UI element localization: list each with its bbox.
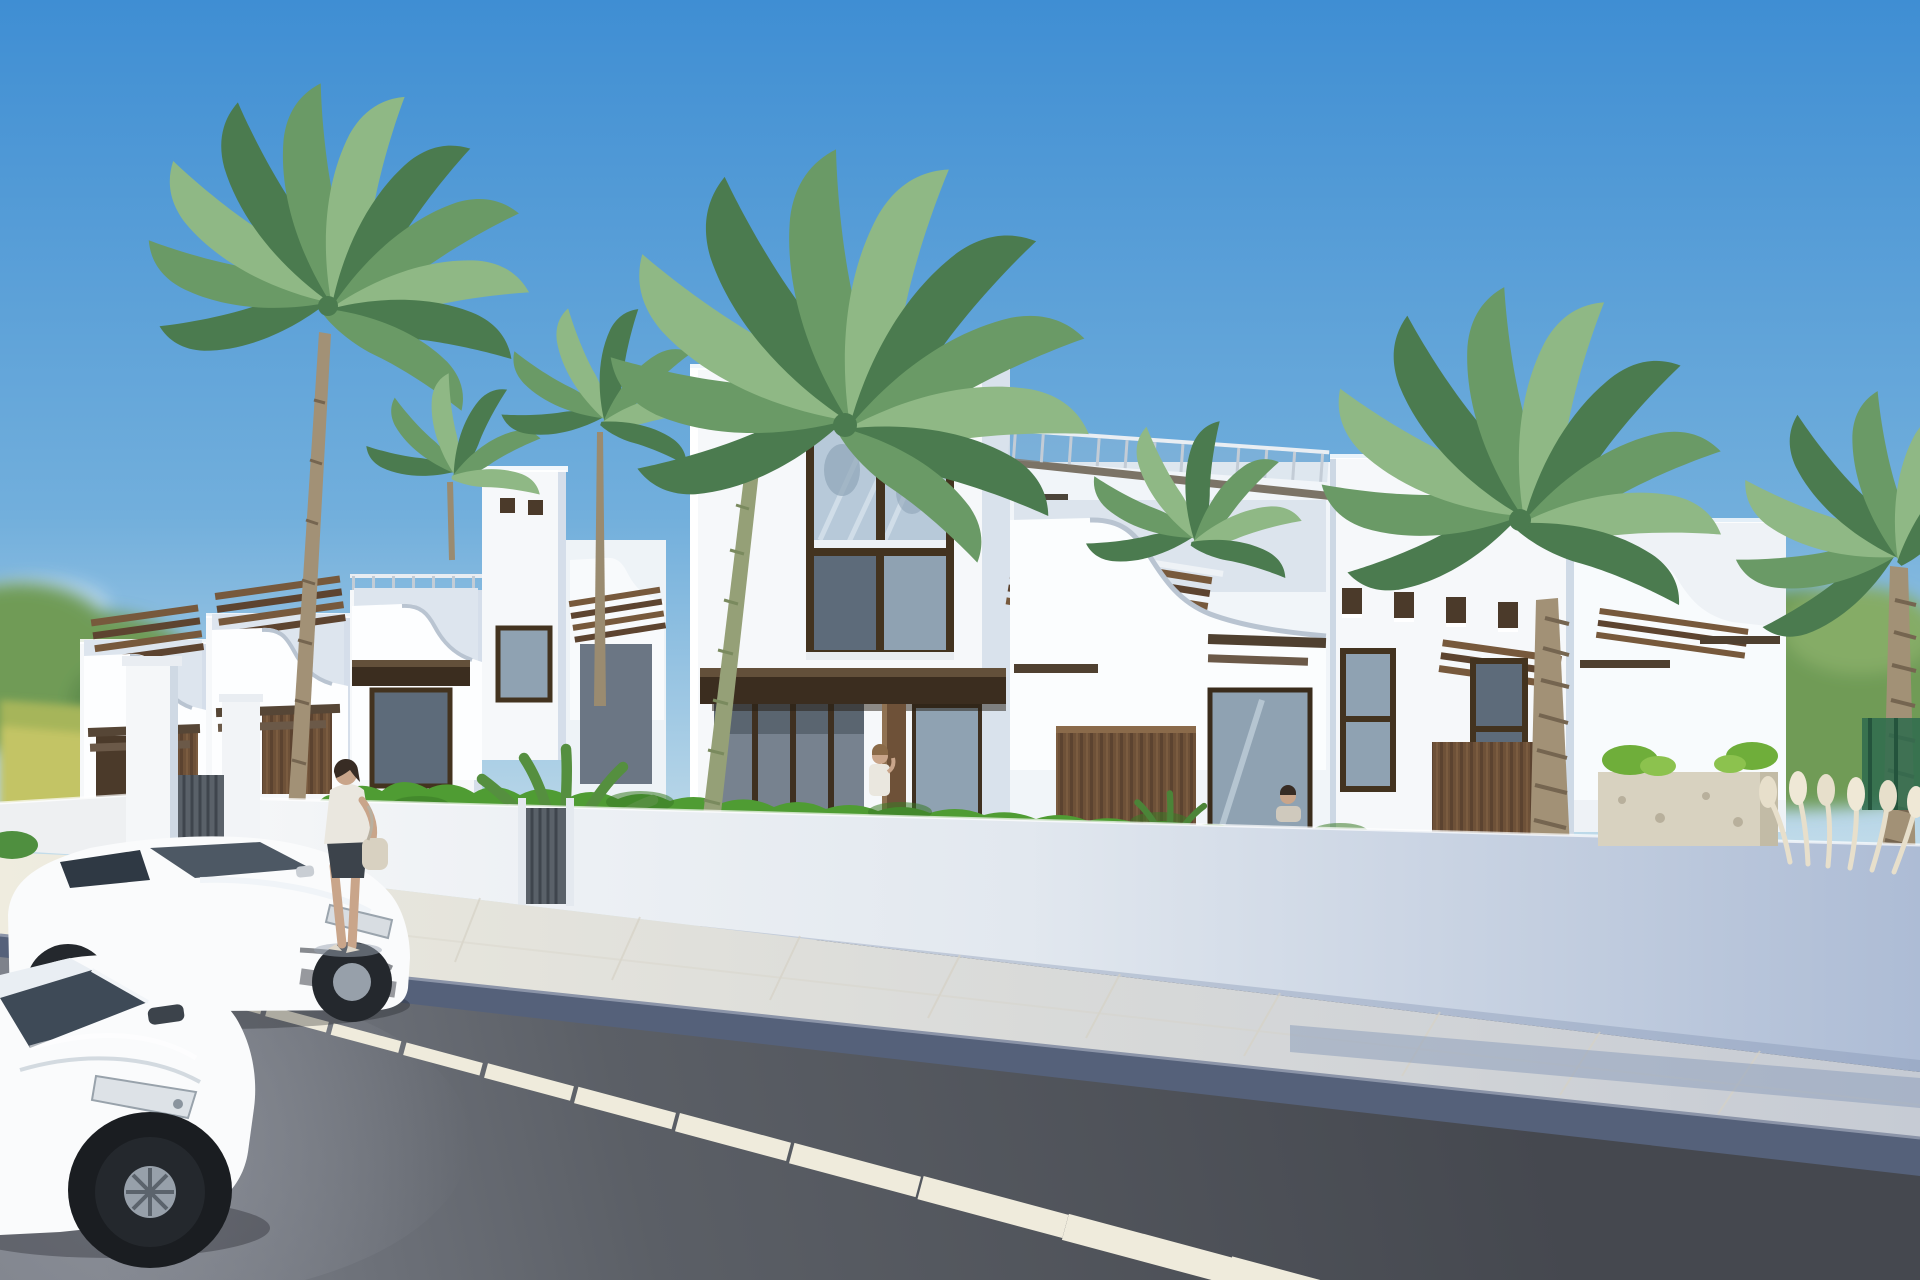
window (498, 628, 550, 700)
pampas-plume (1879, 780, 1897, 812)
window-mullion (876, 556, 884, 650)
tower-side-shade (982, 368, 1010, 838)
railing-post (372, 576, 375, 590)
railing-post (392, 576, 395, 590)
window-sill (1342, 614, 1362, 618)
pampas-plume (1817, 774, 1835, 806)
crown-center (833, 413, 857, 437)
pier-cap (219, 694, 263, 702)
window (372, 690, 450, 786)
shoulders (1276, 806, 1301, 822)
small-window (1446, 597, 1466, 623)
small-window (1342, 588, 1362, 614)
planter-box (1598, 772, 1778, 846)
rim-spokes (126, 1168, 174, 1216)
small-window (1498, 602, 1518, 628)
railing-post (352, 576, 355, 590)
window-sill (1498, 628, 1518, 632)
parked-car-front (0, 955, 255, 1268)
pampas-plume (1759, 776, 1777, 808)
window-transom (814, 540, 946, 548)
railing-post (452, 576, 455, 590)
glazing-shadow (580, 644, 652, 784)
side-mirror (296, 865, 315, 878)
crown-center (1509, 509, 1531, 531)
small-window (500, 498, 515, 513)
canopy-shadow (712, 704, 1006, 711)
window-mullion (1346, 716, 1390, 722)
planter-texture (1733, 817, 1743, 827)
wood-box-top (1056, 726, 1196, 733)
headlight-lens (173, 1099, 183, 1109)
balcony-rail (1700, 636, 1780, 644)
window-mullion (1476, 726, 1522, 732)
railing-post (432, 576, 435, 590)
canopy-top-edge (700, 668, 1006, 677)
block-wall (482, 470, 566, 760)
canopy-top-edge (352, 660, 470, 667)
pillar-shade (170, 662, 178, 862)
palm-trunk (450, 482, 452, 560)
planter-texture (1702, 792, 1710, 800)
stair-tower (480, 466, 568, 760)
railing-post (412, 576, 415, 590)
window-sill (1446, 623, 1466, 627)
pillar-cap (122, 656, 182, 666)
planter-texture (1618, 796, 1626, 804)
planter-shrub (1714, 755, 1746, 773)
roof-post-cap (1044, 494, 1068, 501)
handbag (362, 838, 388, 870)
roof-rail (350, 574, 482, 578)
window-glass-lower (884, 556, 946, 650)
torso (869, 764, 890, 796)
planter-shrub (1640, 756, 1676, 776)
railing-post (472, 576, 475, 590)
pampas-plume (1847, 777, 1865, 811)
wheel-rim (333, 963, 371, 1001)
block-seam (1330, 458, 1336, 840)
wall-gate-2 (518, 798, 574, 906)
crown-center (318, 296, 338, 316)
planter-texture (1655, 813, 1665, 823)
architectural-render (0, 0, 1920, 1280)
window-sill (1394, 618, 1414, 622)
balcony-rail (1014, 664, 1098, 673)
pampas-plume (1789, 771, 1807, 805)
block-side-shade (558, 470, 566, 760)
gate-post (566, 798, 574, 906)
small-window (1394, 592, 1414, 618)
balcony-rail (1580, 660, 1670, 668)
window-sill (806, 652, 954, 660)
gate-post (518, 798, 526, 906)
small-window (528, 500, 543, 515)
window-glass-lower (814, 556, 876, 650)
tower-lit-edge (690, 368, 698, 838)
